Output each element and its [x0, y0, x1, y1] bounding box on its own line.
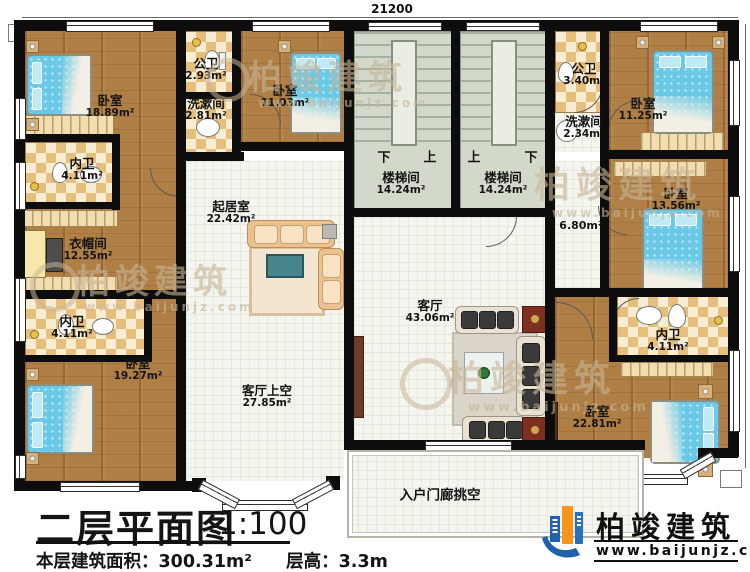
wall	[144, 290, 152, 362]
bed	[642, 208, 704, 294]
bed	[26, 384, 94, 454]
room-label-cloakroom: 衣帽间12.55m²	[64, 237, 113, 263]
room-label-hallway: 6.80m²	[559, 220, 602, 232]
coffee-table	[266, 254, 304, 278]
plan-title: 二层平面图	[36, 498, 236, 553]
sofa-cushion	[522, 366, 540, 386]
watermark-logo-icon	[206, 58, 250, 102]
window	[15, 98, 26, 140]
stair-direction-down: 下	[377, 147, 390, 166]
side-table	[322, 224, 337, 239]
watermark-logo-icon	[400, 358, 452, 410]
sofa-cushion	[469, 421, 486, 439]
room-label-bedroom-bl: 卧室19.27m²	[114, 357, 163, 383]
pillow	[296, 58, 315, 69]
sofa-cushion	[488, 421, 505, 439]
bed-sheet	[63, 386, 92, 452]
window	[15, 162, 26, 210]
room-label-bedroom-tr: 卧室11.25m²	[619, 97, 668, 123]
room-label-neiwei-right: 内卫4.11m²	[647, 328, 688, 354]
wall	[176, 152, 244, 161]
pillow	[675, 214, 697, 226]
brand-logo-icon	[538, 504, 592, 562]
glass-table	[464, 352, 504, 394]
wall	[14, 20, 25, 491]
nightstand	[26, 40, 39, 53]
plan-scale: 1:100	[218, 506, 307, 542]
fixture-knob	[578, 42, 587, 51]
stair-rail	[391, 40, 417, 146]
window	[729, 350, 740, 432]
pillow	[649, 214, 671, 226]
nightstand	[26, 118, 39, 131]
bed	[26, 54, 92, 116]
watermark-logo-icon	[30, 262, 80, 312]
stair-direction-up: 上	[423, 147, 436, 166]
window	[466, 22, 540, 31]
room-label-keting-void: 客厅上空27.85m²	[242, 384, 292, 410]
sofa-cushion	[322, 254, 341, 278]
window	[66, 21, 154, 32]
wall	[238, 142, 344, 151]
closet-strip	[22, 210, 118, 227]
sofa-cushion	[522, 343, 540, 363]
pillow	[32, 392, 43, 418]
bed-sheet	[652, 402, 682, 462]
end-table-ornament	[531, 426, 539, 434]
end-table-ornament	[531, 315, 539, 323]
room-label-neiwei-bottom: 内卫4.11m²	[51, 315, 92, 341]
window	[640, 21, 718, 32]
stair-rail	[491, 40, 517, 146]
building-logo-icon	[538, 504, 592, 562]
pillow	[317, 58, 336, 69]
sofa-cushion	[461, 311, 478, 329]
plant	[477, 366, 491, 380]
dimension-top-label: 21200	[352, 2, 432, 16]
sofa	[455, 306, 519, 334]
room-label-bedroom-br: 卧室22.81m²	[573, 405, 622, 431]
sofa	[318, 248, 344, 310]
area-height-line: 本层建筑面积：300.31m² 层高：3.3m	[36, 548, 388, 572]
wall	[545, 288, 738, 297]
pillow	[32, 88, 42, 110]
dimension-corner-box	[720, 470, 742, 488]
closet-strip	[640, 132, 724, 151]
dimension-line-right	[745, 24, 746, 468]
sofa-cushion	[322, 280, 341, 304]
sink	[636, 306, 662, 325]
closet-strip	[613, 161, 707, 177]
room-label-qijushi: 起居室22.42m²	[207, 200, 256, 226]
window	[729, 60, 740, 126]
nightstand	[26, 452, 39, 465]
nightstand	[636, 36, 649, 49]
window	[252, 21, 330, 32]
brand-url: www.baijunjz.com	[596, 543, 750, 559]
title-underline	[36, 541, 290, 544]
sofa-cushion	[497, 311, 514, 329]
sofa-cushion	[254, 225, 278, 244]
room-label-keting: 客厅43.06m²	[406, 299, 455, 325]
wall	[609, 294, 617, 362]
wall	[344, 20, 354, 449]
pillow	[659, 56, 681, 68]
wall	[609, 355, 738, 362]
room-label-neiwei-top: 内卫4.11m²	[61, 157, 102, 183]
floor-plan-canvas: 21200 13800	[0, 0, 750, 572]
room-label-gongwei-right: 公卫3.40m²	[563, 62, 604, 88]
fixture-knob	[30, 330, 39, 339]
floor-area-text: 本层建筑面积：300.31m²	[36, 552, 252, 572]
nightstand	[712, 36, 725, 49]
sofa-cushion	[479, 311, 496, 329]
room-label-bedroom-mr: 卧室13.56m²	[652, 187, 701, 213]
room-label-bedroom-tl: 卧室18.89m²	[86, 94, 135, 120]
wall	[112, 134, 120, 210]
toilet	[668, 304, 686, 328]
window	[368, 22, 442, 31]
wall	[344, 208, 555, 217]
sink	[92, 318, 114, 335]
pillow	[32, 62, 42, 84]
sofa-cushion	[280, 225, 304, 244]
bay-window	[292, 480, 334, 509]
fixture-knob	[714, 316, 723, 325]
fixture-knob	[30, 182, 39, 191]
pillow	[32, 422, 43, 448]
window	[15, 278, 26, 342]
brand-rule	[594, 560, 738, 562]
closet-strip	[620, 362, 714, 377]
pillow	[685, 56, 707, 68]
stair-direction-down: 下	[524, 147, 537, 166]
wall	[545, 20, 555, 458]
wall	[176, 20, 186, 481]
sofa-cushion	[522, 389, 540, 409]
wall	[600, 150, 738, 159]
floor-height-text: 层高：3.3m	[286, 552, 388, 572]
stair-direction-up: 上	[467, 147, 480, 166]
nightstand	[278, 40, 291, 53]
wall	[14, 202, 120, 209]
room-label-stair-right: 楼梯间14.24m²	[479, 171, 528, 197]
fixture-knob	[192, 38, 201, 47]
room-label-stair-left: 楼梯间14.24m²	[377, 171, 426, 197]
window	[15, 455, 26, 479]
window	[60, 482, 140, 492]
sofa-cushion	[506, 421, 523, 439]
sofa	[516, 336, 546, 416]
pillow	[703, 407, 714, 431]
wall	[14, 134, 120, 142]
room-label-washroom-right: 洗漱间2.34m²	[563, 115, 604, 141]
dimension-line-top	[22, 17, 738, 18]
brand-rule	[594, 540, 738, 542]
nightstand	[698, 384, 713, 399]
window	[729, 196, 740, 272]
nightstand	[26, 368, 39, 381]
room-label-porch-void: 入户门廊挑空	[400, 488, 481, 503]
room-label-bedroom-tm: 卧室11.03m²	[261, 84, 310, 110]
wall	[451, 20, 460, 217]
